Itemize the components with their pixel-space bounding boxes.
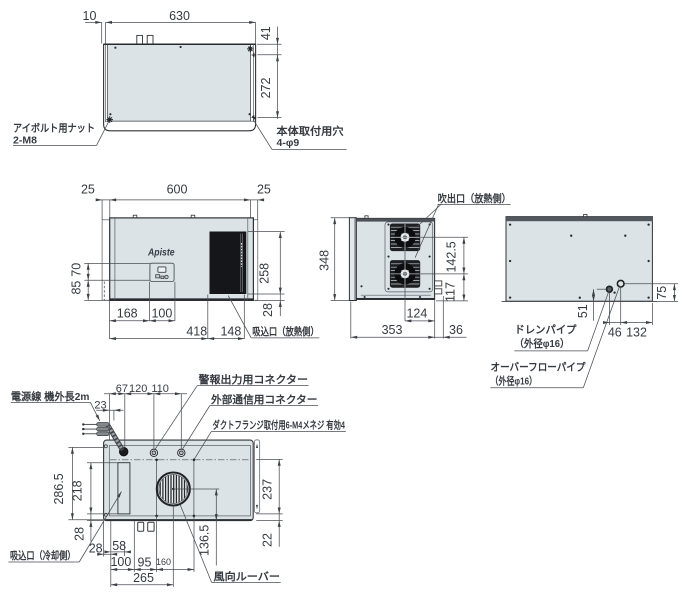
svg-text:28: 28 (261, 303, 275, 317)
svg-text:（外径φ16）: （外径φ16） (515, 337, 570, 350)
svg-text:本体取付用穴: 本体取付用穴 (277, 124, 345, 137)
svg-text:51: 51 (576, 304, 590, 318)
svg-text:265: 265 (133, 571, 154, 585)
svg-text:10: 10 (83, 9, 97, 23)
svg-text:吹出口（放熱側）: 吹出口（放熱側） (438, 192, 511, 205)
svg-text:132: 132 (626, 325, 647, 339)
svg-text:Apiste: Apiste (147, 247, 175, 258)
svg-text:ドレンパイプ: ドレンパイプ (515, 323, 577, 336)
svg-text:28: 28 (89, 541, 103, 555)
svg-text:25: 25 (257, 182, 271, 196)
svg-text:4-φ9: 4-φ9 (277, 137, 300, 149)
svg-text:353: 353 (382, 323, 403, 337)
svg-text:2-M8: 2-M8 (13, 134, 37, 146)
svg-text:418: 418 (186, 325, 207, 339)
svg-text:オーバーフローパイプ: オーバーフローパイプ (491, 361, 586, 374)
svg-text:630: 630 (169, 9, 190, 23)
svg-text:25: 25 (81, 182, 95, 196)
svg-text:272: 272 (259, 78, 273, 99)
svg-text:36: 36 (449, 323, 463, 337)
svg-text:218: 218 (70, 480, 84, 501)
svg-text:136.5: 136.5 (198, 525, 212, 556)
svg-text:ダクトフランジ取付用6-M4メネジ 有効4: ダクトフランジ取付用6-M4メネジ 有効4 (213, 419, 346, 432)
svg-text:168: 168 (117, 307, 138, 321)
svg-text:237: 237 (261, 479, 275, 500)
svg-text:28: 28 (73, 527, 87, 541)
svg-text:70: 70 (69, 263, 83, 277)
svg-text:吸込口（放熱側）: 吸込口（放熱側） (252, 325, 318, 338)
svg-text:85: 85 (69, 281, 83, 295)
svg-text:100: 100 (110, 555, 131, 569)
svg-text:142.5: 142.5 (444, 241, 458, 272)
svg-text:120: 120 (129, 383, 147, 395)
svg-text:アイボルト用ナット: アイボルト用ナット (13, 121, 95, 134)
svg-text:41: 41 (259, 26, 273, 40)
svg-text:75: 75 (655, 286, 669, 300)
svg-text:（外径φ16）: （外径φ16） (491, 374, 538, 387)
svg-text:22: 22 (261, 533, 275, 547)
svg-text:124: 124 (406, 307, 427, 321)
svg-text:警報出力用コネクター: 警報出力用コネクター (197, 373, 308, 386)
svg-text:348: 348 (317, 250, 331, 271)
svg-text:風向ルーバー: 風向ルーバー (214, 570, 281, 583)
svg-text:600: 600 (167, 182, 188, 196)
svg-text:286.5: 286.5 (52, 473, 66, 504)
svg-text:148: 148 (220, 325, 241, 339)
svg-text:58: 58 (112, 539, 126, 553)
svg-text:吸込口（冷却側）: 吸込口（冷却側） (10, 549, 76, 562)
svg-text:117: 117 (443, 282, 457, 302)
svg-text:46: 46 (608, 325, 622, 339)
svg-text:電源線 機外長2m: 電源線 機外長2m (11, 390, 90, 403)
svg-text:100: 100 (151, 307, 172, 321)
svg-text:160: 160 (156, 557, 171, 567)
svg-text:258: 258 (258, 263, 272, 284)
svg-text:外部通信用コネクター: 外部通信用コネクター (210, 393, 318, 406)
svg-text:95: 95 (138, 555, 152, 569)
